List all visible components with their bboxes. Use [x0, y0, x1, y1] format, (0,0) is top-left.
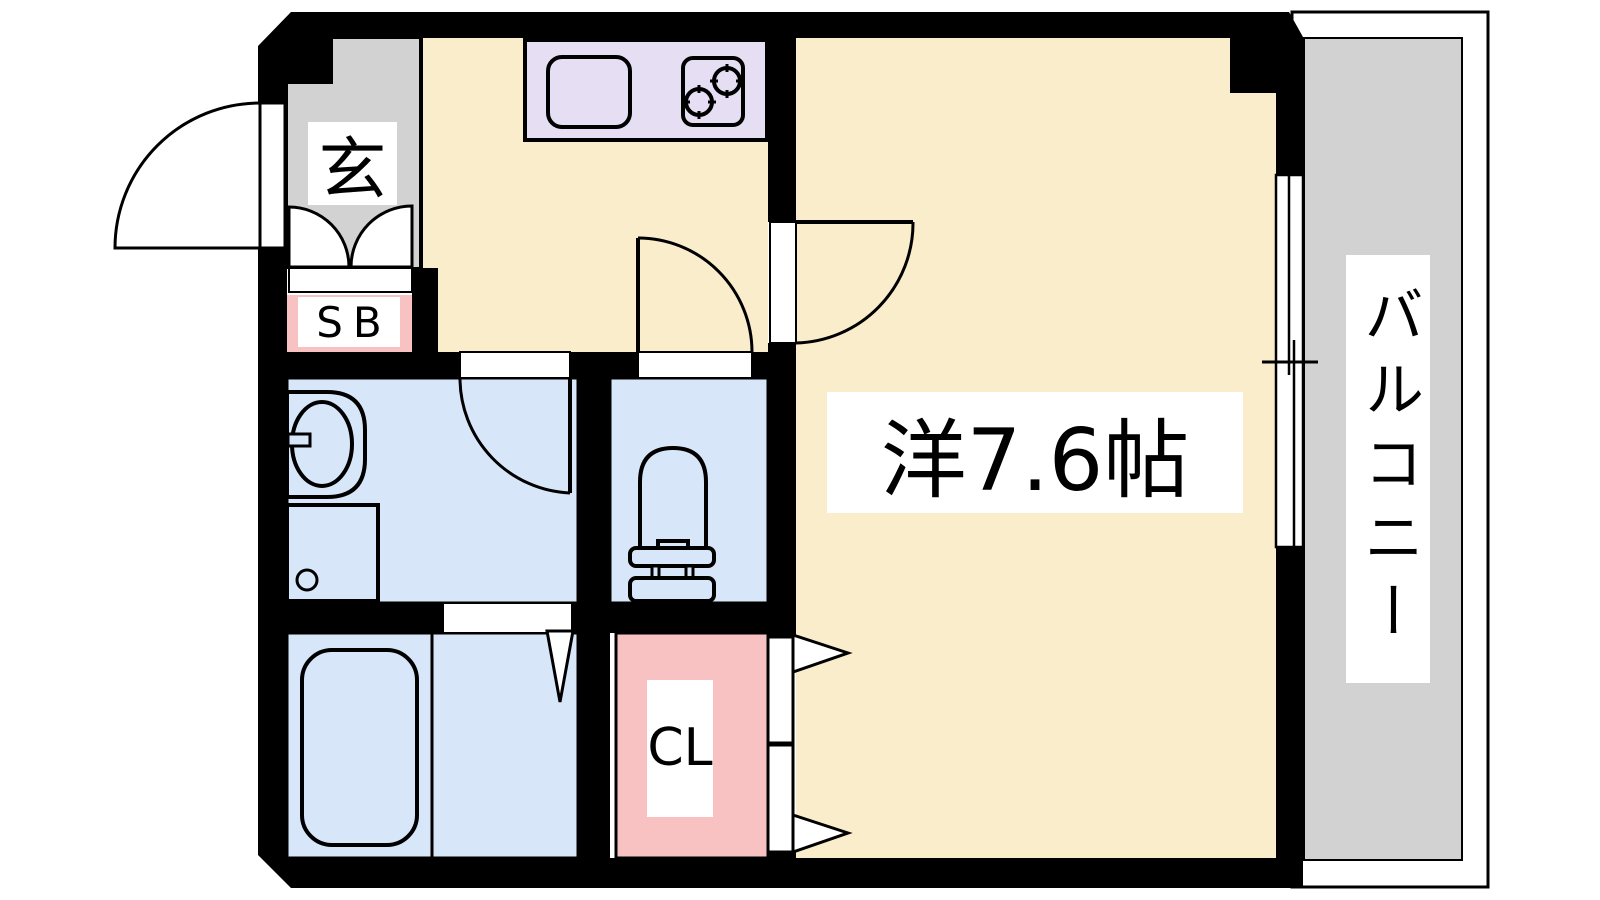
washing-machine-pan [287, 505, 378, 601]
wall-left-lower [258, 248, 287, 888]
closet-door-panel-top [768, 637, 793, 743]
toilet [630, 448, 714, 601]
washbasin-faucet [288, 434, 310, 446]
wall-kitchen-mainroom-lower [768, 343, 796, 637]
entrance-door-swing-arc [115, 103, 260, 248]
bathtub [302, 650, 417, 845]
wall-right-lower [1276, 547, 1303, 888]
washbasin [287, 392, 365, 497]
main-room-label: 洋7.6帖 [827, 392, 1243, 513]
genkan-threshold [289, 268, 412, 292]
mainroom-door-opening [770, 222, 796, 343]
wall-kitchen-mainroom-upper [768, 12, 796, 222]
closet-door-panel-bottom [768, 745, 793, 852]
washroom-door-opening [460, 352, 570, 378]
floorplan-canvas: 玄 SB 洋7.6帖 CL バルコニー [0, 0, 1600, 900]
wall-entrance-corner [287, 38, 332, 83]
toilet-seat-bar [630, 548, 714, 566]
wall-center-vertical [578, 352, 610, 858]
toilet-bowl [640, 448, 706, 552]
toilet-tank [630, 578, 714, 601]
bathroom-door-opening [443, 603, 572, 633]
balcony-label: バルコニー [1346, 255, 1430, 683]
entrance-label: 玄 [308, 122, 397, 205]
wall-closet-bottom-stub [768, 852, 796, 888]
entrance-door-leaf [260, 103, 285, 248]
kitchen-counter [525, 40, 767, 140]
wall-genkan-kitchen-line [419, 38, 423, 268]
shoe-box-label: SB [298, 297, 400, 347]
toilet-door-opening [638, 352, 752, 378]
kitchen-sink [548, 57, 630, 127]
closet-label: CL [647, 680, 713, 817]
